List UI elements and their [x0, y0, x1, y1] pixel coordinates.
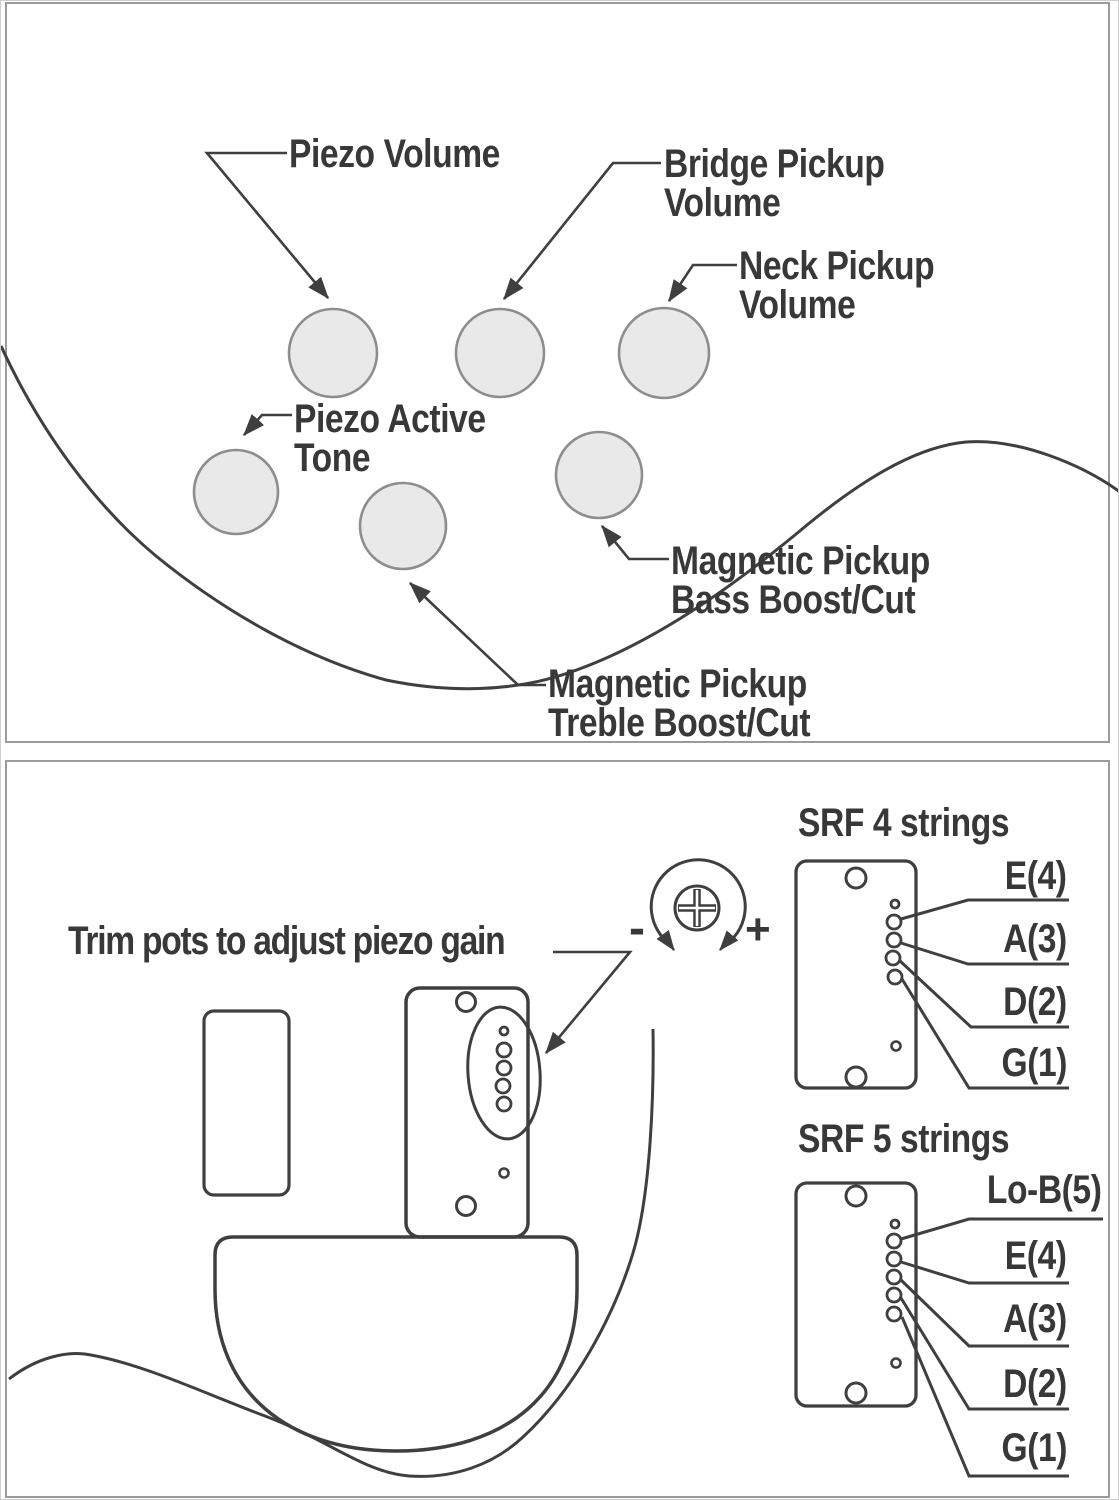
srf5-pot-a — [887, 1270, 901, 1284]
srf5-string-g1: G(1) — [1001, 1429, 1067, 1468]
body-contour-top — [1, 346, 1119, 689]
label-trim-pots: Trim pots to adjust piezo gain — [68, 922, 504, 961]
pickup-screw-top — [457, 993, 476, 1012]
label-piezo-active-tone: Piezo Active Tone — [294, 400, 486, 478]
diagram-art — [1, 1, 1119, 1500]
srf4-screw-bottom — [846, 1067, 866, 1087]
srf4-pot-a — [887, 933, 901, 947]
top-panel-art — [1, 153, 1119, 689]
leader-magnetic-treble-arrow — [410, 583, 546, 685]
srf4-title: SRF 4 strings — [798, 804, 1009, 843]
srf4-string-g1: G(1) — [1001, 1044, 1067, 1083]
srf4-pot-d — [886, 951, 900, 965]
trim-pot-4 — [497, 1097, 511, 1111]
srf5-small-hole-bottom — [892, 1359, 901, 1368]
srf4-screw-top — [846, 868, 866, 888]
leader-magnetic-bass-arrow — [602, 526, 669, 559]
trim-pot-2 — [497, 1061, 511, 1075]
srf4-plate-outline — [796, 861, 916, 1088]
srf5-string-d2: D(2) — [1003, 1365, 1067, 1404]
knob-neck-pickup-volume — [619, 308, 709, 398]
bridge-pickup-diagram — [406, 988, 545, 1237]
trim-pot-3 — [496, 1079, 510, 1093]
srf4-pot-g — [888, 970, 902, 984]
knob-magnetic-treble — [360, 483, 446, 569]
srf5-pot-d — [887, 1288, 901, 1302]
leader-bridge-volume-arrow — [504, 163, 661, 299]
trim-pot-1 — [497, 1043, 511, 1057]
srf5-pot-lob — [887, 1234, 901, 1248]
leader-piezo-active-arrow — [244, 415, 292, 435]
screw-rotation-icon — [651, 860, 745, 950]
label-neck-pickup-volume: Neck Pickup Volume — [739, 247, 934, 325]
srf4-string-d2: D(2) — [1003, 983, 1067, 1022]
trim-pot-hole — [500, 1027, 508, 1035]
srf4-pot-e — [887, 915, 901, 929]
bridge-pickup-outline — [406, 988, 528, 1237]
srf5-plate-outline — [796, 1183, 916, 1406]
label-bridge-pickup-volume: Bridge Pickup Volume — [664, 145, 884, 223]
srf5-title: SRF 5 strings — [798, 1120, 1009, 1159]
leader-trim-pots-arrow — [546, 952, 630, 1053]
knob-piezo-volume — [289, 309, 377, 397]
srf5-pot-g — [887, 1307, 901, 1321]
rotation-arrow-left — [663, 935, 674, 950]
srf5-pot-hole — [891, 1220, 899, 1228]
srf4-string-e4: E(4) — [1005, 857, 1067, 896]
srf4-string-a3: A(3) — [1003, 920, 1067, 959]
body-contour-bottom — [9, 1029, 653, 1476]
srf5-screw-bottom — [846, 1383, 866, 1403]
label-piezo-volume: Piezo Volume — [289, 135, 500, 174]
srf5-string-e4: E(4) — [1005, 1237, 1067, 1276]
minus-sign: - — [629, 906, 645, 953]
srf4-pot-hole — [891, 900, 899, 908]
knob-magnetic-bass — [556, 432, 642, 518]
manual-page: Piezo Volume Bridge Pickup Volume Neck P… — [0, 0, 1119, 1500]
pickup-screw-bottom — [457, 1197, 476, 1216]
srf5-string-a3: A(3) — [1003, 1300, 1067, 1339]
knob-bridge-pickup-volume — [456, 309, 544, 397]
srf5-string-lob5: Lo-B(5) — [986, 1171, 1101, 1210]
srf5-line-lob — [901, 1219, 1103, 1239]
trim-pot-oval — [463, 1005, 544, 1142]
leader-neck-volume-arrow — [669, 265, 737, 301]
srf5-pot-e — [887, 1252, 901, 1266]
neck-pickup-outline — [204, 1011, 289, 1195]
plus-sign: + — [745, 909, 771, 952]
knob-piezo-active-tone — [194, 450, 278, 534]
pickup-small-hole — [500, 1169, 509, 1178]
srf4-small-hole-bottom — [892, 1042, 901, 1051]
srf5-screw-top — [846, 1186, 866, 1206]
label-magnetic-bass-boost-cut: Magnetic Pickup Bass Boost/Cut — [671, 542, 930, 620]
label-magnetic-treble-boost-cut: Magnetic Pickup Treble Boost/Cut — [548, 665, 810, 743]
